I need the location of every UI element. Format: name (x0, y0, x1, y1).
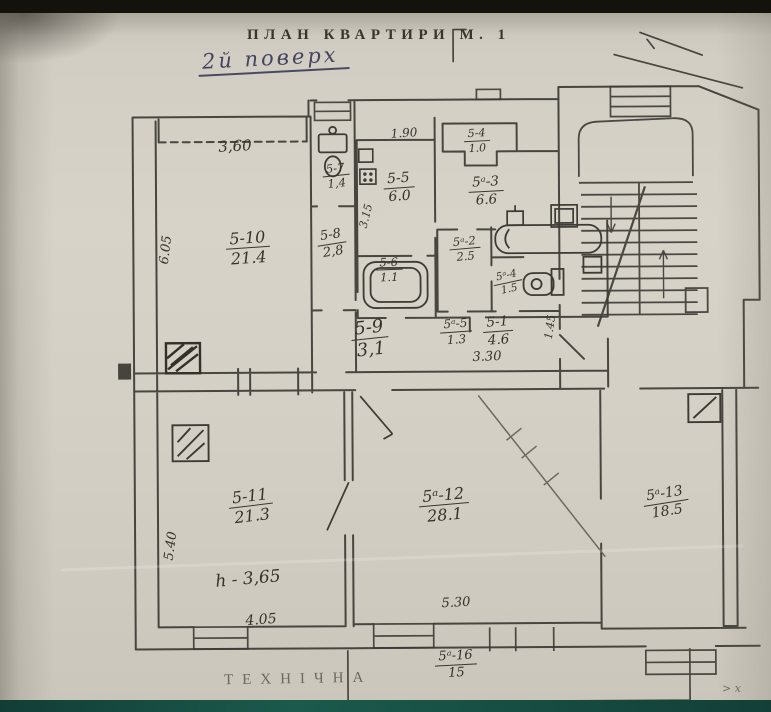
room-label-5a-3: 5ᵃ-36.6 (468, 174, 504, 208)
room-label-5a-12: 5ᵃ-1228.1 (417, 484, 470, 526)
room-label-5-9: 5-93,1 (349, 316, 390, 362)
vent-hatch-icon (172, 394, 720, 461)
staircase (579, 118, 708, 327)
room-label-5a-16: 5ᵃ-1615 (434, 648, 478, 681)
footer-label: ТЕХНІЧНА (224, 670, 373, 690)
dim-1-90: 1.90 (390, 125, 418, 141)
sink-icon (507, 205, 577, 227)
pencil-strike-line (478, 395, 605, 558)
balcony-outline (348, 648, 690, 702)
door-swing-icon (326, 396, 393, 530)
photo-top-edge (0, 0, 771, 13)
photo-bottom-edge (0, 700, 771, 712)
room-label-5a-2: 5ᵃ-22.5 (448, 234, 481, 264)
toilet-2-icon (523, 269, 563, 295)
dim-3-30: 3.30 (472, 349, 501, 365)
room-label-5-1: 5-14.6 (482, 314, 514, 348)
room-label-5-10: 5-1021.4 (225, 228, 271, 269)
room-label-5-5: 5-56.0 (383, 170, 416, 205)
dim-3-60: 3,60 (218, 136, 252, 156)
room-label-5a-5: 5ᵃ-51.3 (439, 316, 473, 347)
dim-5-30: 5.30 (441, 595, 471, 611)
room-label-5-8: 5-82,8 (315, 226, 348, 261)
room-label-5-6: 5-61.1 (375, 256, 402, 285)
corner-mark: > х (722, 682, 741, 695)
room-label-5-11: 5-1121.3 (227, 485, 275, 528)
room-label-5-7: 5-71,4 (321, 161, 350, 191)
dim-4-05: 4.05 (245, 611, 277, 629)
room-label-5-4: 5-41.0 (463, 127, 490, 155)
scanned-photo: ПЛАН КВАРТИРИ М. 1 2й поверх ТЕХНІЧНА > … (0, 0, 771, 712)
room-label-5a-13: 5ᵃ-1318.5 (641, 483, 690, 523)
plan-title: ПЛАН КВАРТИРИ М. 1 (247, 27, 511, 44)
kitchen-stove-icon (359, 149, 376, 184)
